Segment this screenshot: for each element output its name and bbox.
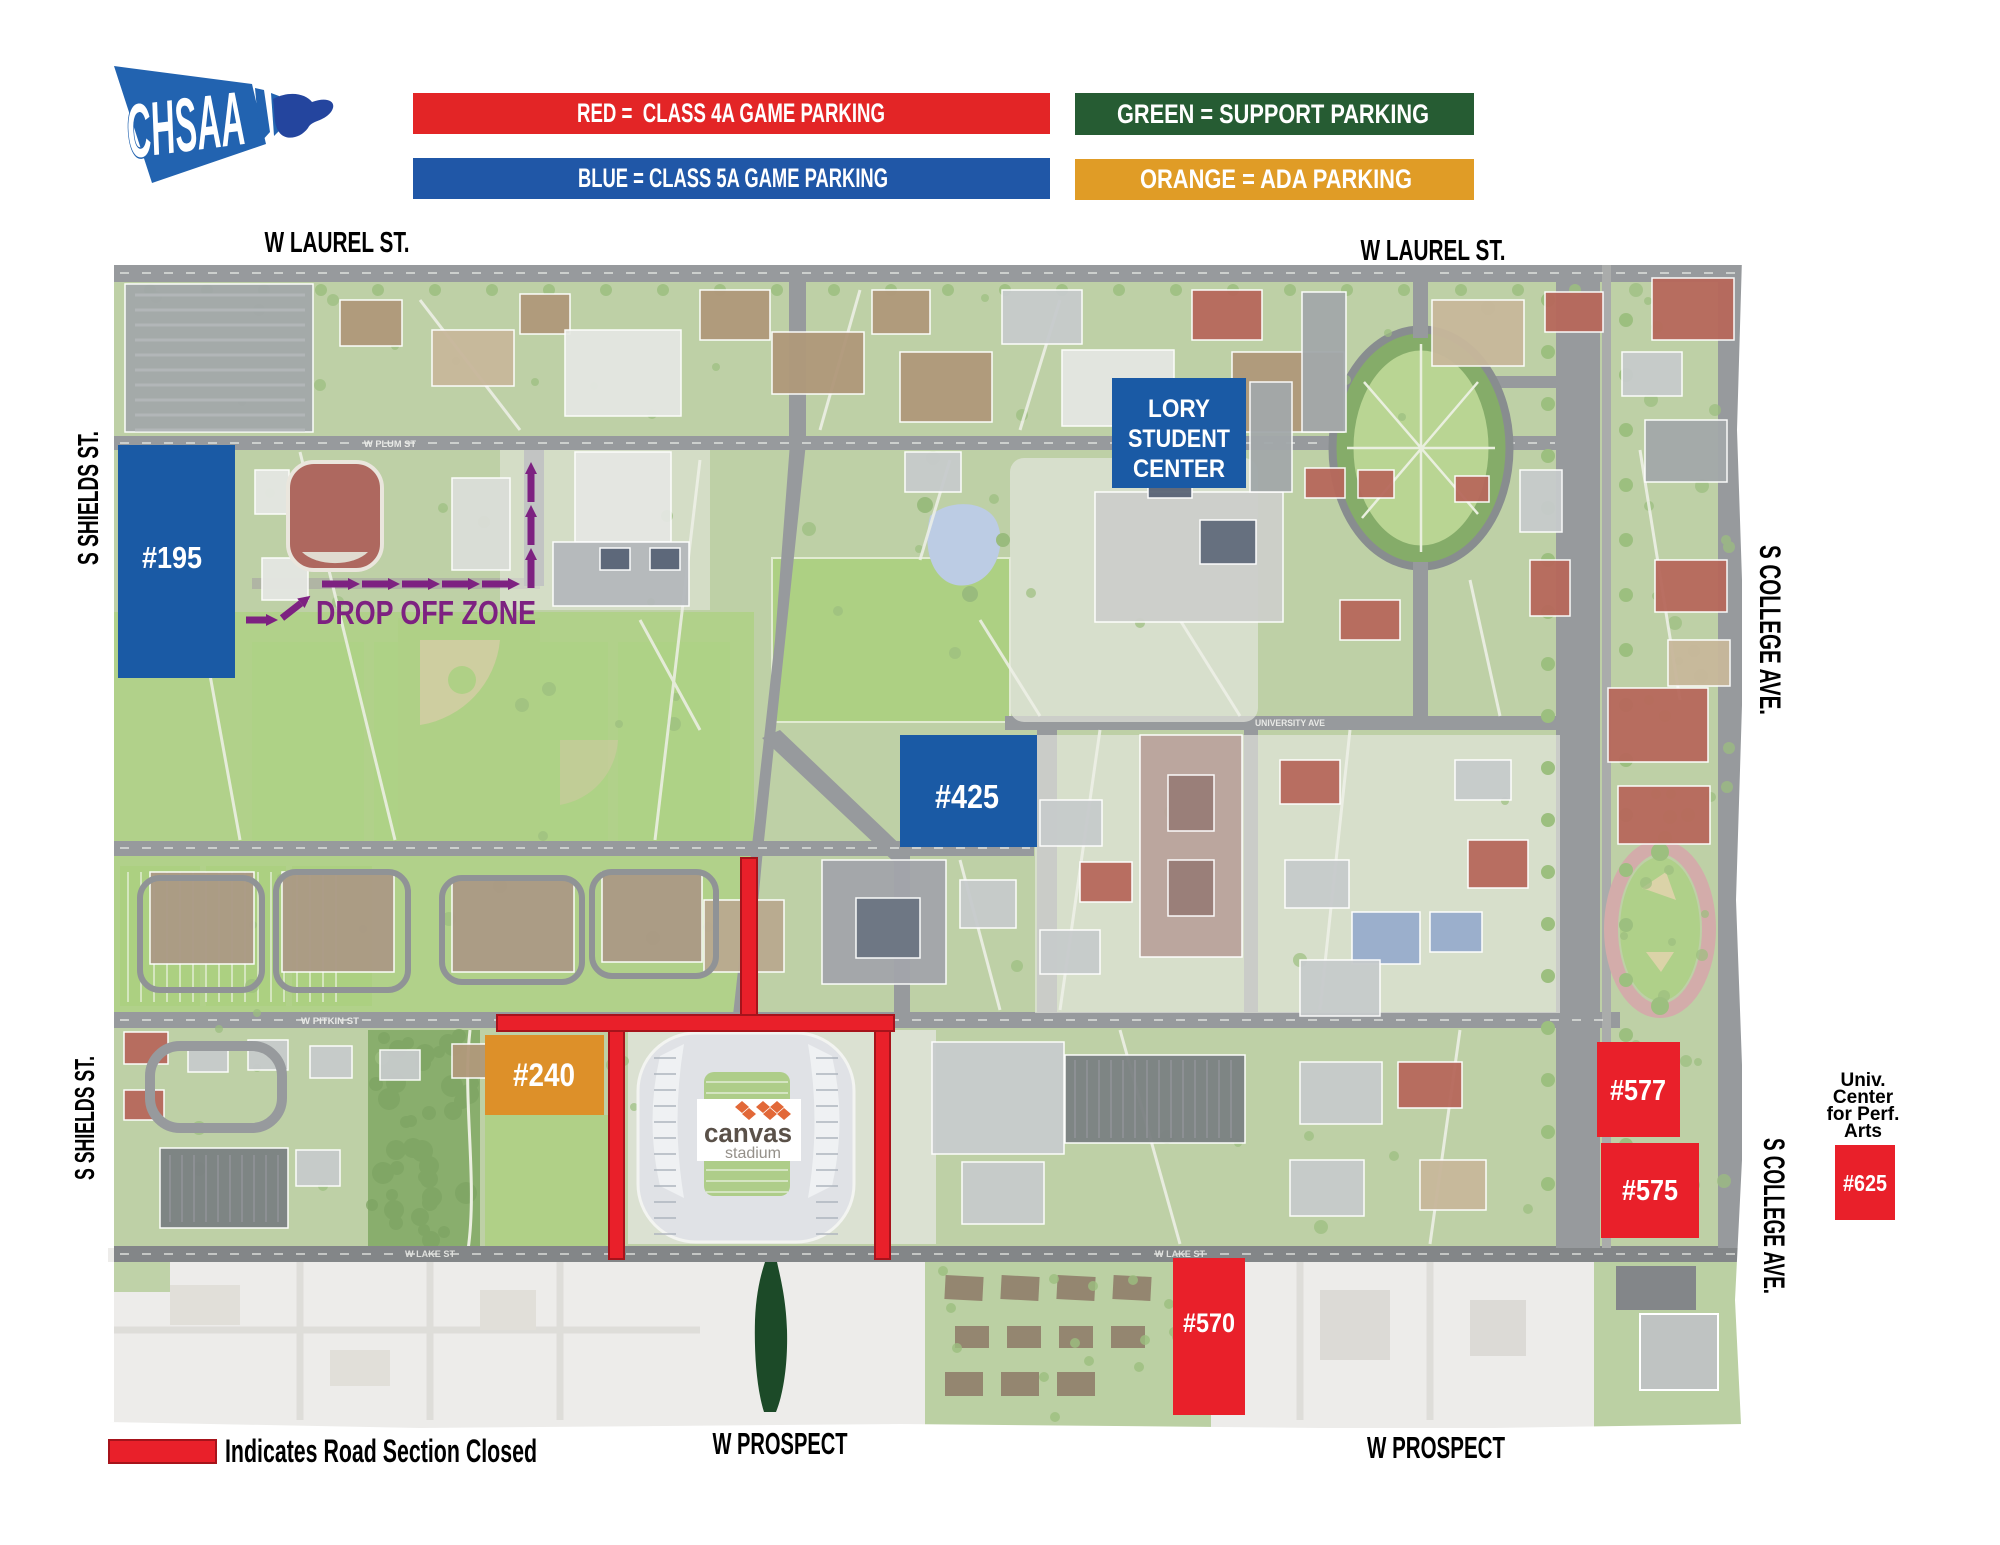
svg-text:S COLLEGE AVE.: S COLLEGE AVE.: [1757, 1138, 1790, 1294]
svg-text:W PROSPECT: W PROSPECT: [1367, 1430, 1505, 1465]
svg-text:W LAKE ST: W LAKE ST: [1155, 1249, 1206, 1259]
svg-text:UNIVERSITY AVE: UNIVERSITY AVE: [1255, 718, 1325, 728]
svg-text:W PROSPECT: W PROSPECT: [713, 1426, 848, 1461]
svg-text:#625: #625: [1843, 1170, 1887, 1196]
svg-text:GREEN = SUPPORT PARKING: GREEN = SUPPORT PARKING: [1117, 99, 1429, 129]
svg-text:Indicates Road Section Closed: Indicates Road Section Closed: [225, 1433, 537, 1469]
svg-text:#425: #425: [935, 778, 999, 815]
svg-text:S SHIELDS ST.: S SHIELDS ST.: [69, 1056, 100, 1180]
svg-text:W LAUREL ST.: W LAUREL ST.: [1361, 235, 1506, 267]
svg-text:#240: #240: [513, 1057, 575, 1093]
svg-text:Arts: Arts: [1844, 1121, 1882, 1142]
svg-text:LORY: LORY: [1148, 395, 1210, 423]
svg-text:S COLLEGE AVE.: S COLLEGE AVE.: [1753, 545, 1786, 715]
svg-text:#577: #577: [1610, 1075, 1666, 1107]
svg-text:RED = CLASS 4A GAME PARKING: RED = CLASS 4A GAME PARKING: [577, 98, 885, 128]
svg-text:W LAKE ST: W LAKE ST: [405, 1249, 456, 1259]
svg-text:DROP OFF ZONE: DROP OFF ZONE: [316, 594, 536, 631]
svg-text:#570: #570: [1183, 1308, 1235, 1338]
svg-text:W PITKIN ST: W PITKIN ST: [301, 1016, 360, 1026]
svg-text:CENTER: CENTER: [1133, 455, 1225, 483]
svg-text:#195: #195: [142, 540, 202, 575]
svg-text:ORANGE = ADA PARKING: ORANGE = ADA PARKING: [1140, 164, 1412, 194]
svg-text:W LAUREL ST.: W LAUREL ST.: [265, 227, 410, 259]
svg-text:CHSAA: CHSAA: [122, 76, 249, 175]
svg-text:S SHIELDS ST.: S SHIELDS ST.: [73, 431, 105, 565]
svg-text:STUDENT: STUDENT: [1128, 425, 1230, 453]
svg-text:BLUE = CLASS 5A GAME PARKING: BLUE = CLASS 5A GAME PARKING: [578, 163, 888, 193]
svg-text:#575: #575: [1622, 1175, 1678, 1207]
svg-text:W PLUM ST: W PLUM ST: [364, 439, 417, 449]
